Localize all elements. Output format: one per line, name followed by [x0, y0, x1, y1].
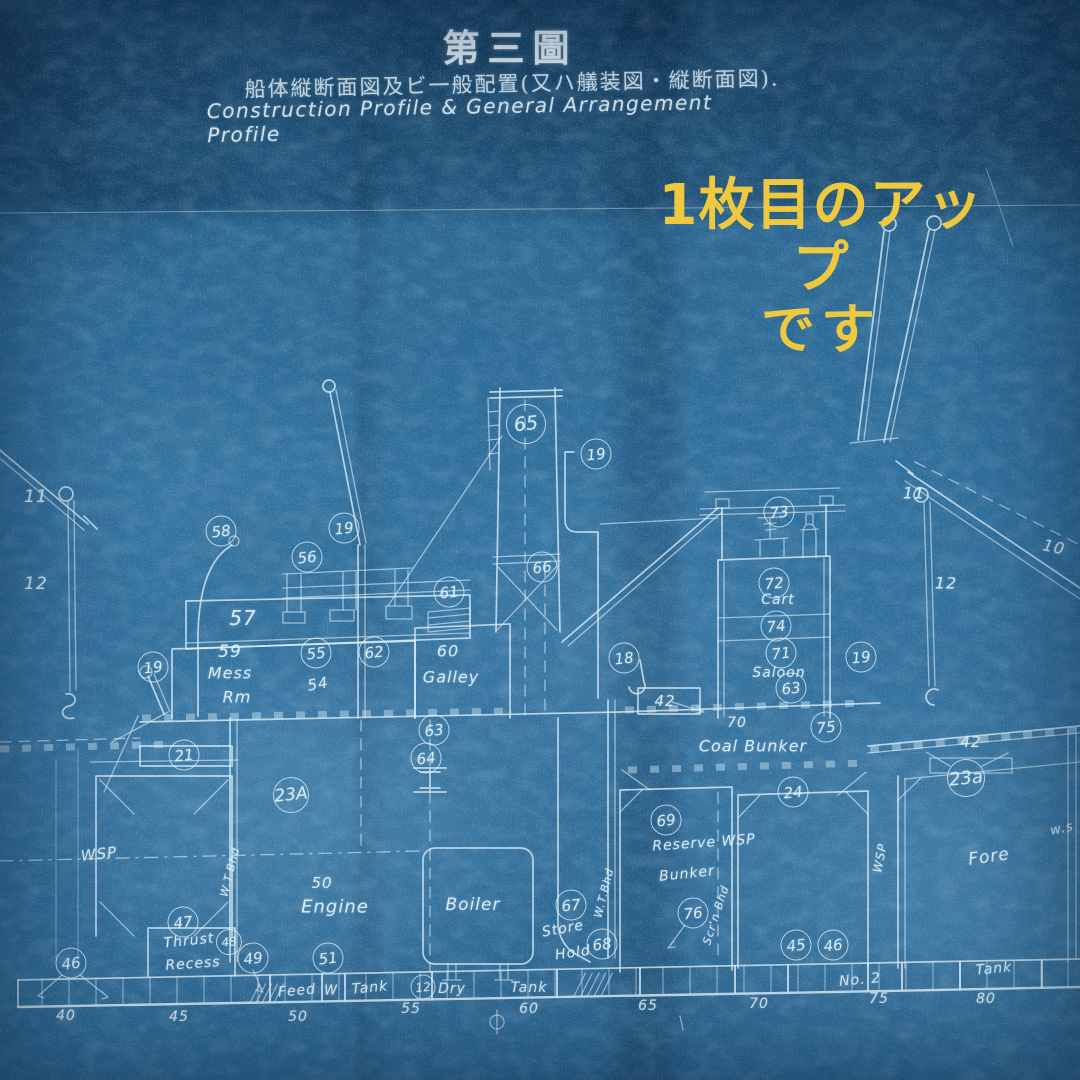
blueprint-label: 59	[218, 642, 242, 662]
blueprint-drawing	[0, 0, 1080, 1080]
blueprint-label: Tank	[975, 959, 1013, 978]
blueprint-label: 50	[311, 874, 332, 892]
blueprint-label: 42	[960, 733, 981, 751]
blueprint-label: 57	[229, 606, 256, 630]
blueprint-label: WSP	[80, 843, 118, 865]
blueprint-label: 50	[288, 1009, 308, 1025]
blueprint-label: Coal Bunker	[699, 737, 807, 756]
blueprint-label: 11	[903, 484, 925, 503]
blueprint-photo: 11121112105759MessRm5460Galley42CartSalo…	[0, 0, 1080, 1080]
drawing-title-jp: 第三圖	[443, 18, 578, 72]
blueprint-label: 75	[869, 991, 889, 1007]
blueprint-label: Engine	[301, 897, 369, 918]
blueprint-label: 40	[56, 1008, 76, 1024]
blueprint-label: 12	[24, 574, 48, 594]
blueprint-label: Dry	[438, 981, 466, 997]
overlay-caption-line1: 1枚目のアップ	[645, 175, 997, 300]
blueprint-label: 80	[976, 991, 996, 1007]
overlay-caption: 1枚目のアップ です	[645, 175, 997, 361]
blueprint-label: 70	[749, 996, 769, 1012]
blueprint-label: Boiler	[446, 895, 501, 915]
blueprint-label: Galley	[423, 668, 479, 687]
blueprint-label: Rm	[223, 688, 252, 707]
overlay-caption-line2: です	[645, 300, 997, 360]
blueprint-label: Mess	[208, 664, 252, 683]
blueprint-label: 60	[519, 1001, 539, 1017]
blueprint-label: 42	[654, 692, 675, 710]
drawing-subtitle-en: Construction Profile & General Arrangeme…	[207, 89, 790, 147]
blueprint-label: 55	[401, 1001, 421, 1017]
blueprint-label: 11	[24, 487, 48, 507]
blueprint-label: Feed	[277, 981, 316, 1000]
blueprint-label: Tank	[511, 980, 548, 996]
blueprint-label: W	[324, 984, 338, 999]
blueprint-label: 12	[935, 574, 957, 593]
blueprint-label: 65	[638, 998, 658, 1014]
blueprint-label: 54	[306, 673, 330, 694]
blueprint-label: 70	[727, 715, 747, 731]
blueprint-label: Tank	[351, 978, 389, 997]
blueprint-label: 60	[437, 642, 459, 661]
blueprint-label: 45	[169, 1009, 189, 1025]
